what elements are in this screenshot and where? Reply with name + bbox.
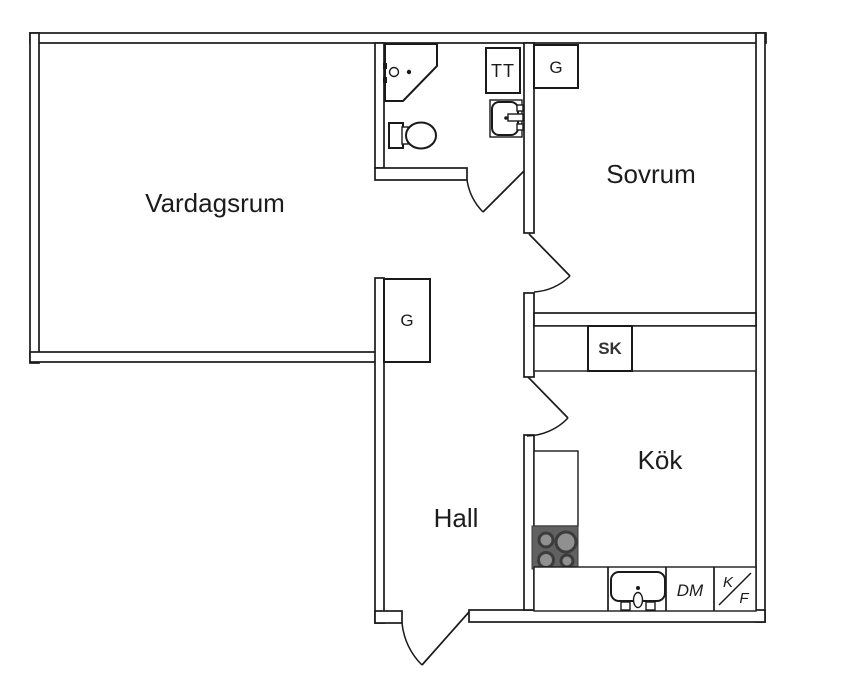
wall-bathroom-left (375, 43, 384, 168)
dishwasher-label: DM (677, 581, 704, 600)
toilet-icon (406, 123, 436, 149)
shower-faucet-icon (390, 68, 399, 77)
kitchen-sink-dot (636, 586, 640, 590)
kitchen-sink-knob-left (621, 602, 630, 610)
fridge-label: K (723, 574, 734, 591)
shower-drain-dot (407, 70, 411, 74)
burner-top-left (539, 533, 553, 547)
washbasin-faucet (508, 114, 523, 121)
kitchen-label: Kök (638, 445, 684, 475)
kitchen-door-swing-icon (527, 418, 568, 436)
wall-divider-middle (524, 293, 534, 377)
burner-bottom-right (561, 555, 573, 567)
bedroom-door (529, 234, 570, 292)
bedroom-label: Sovrum (606, 159, 696, 189)
kitchen-sink-faucet (634, 593, 643, 608)
entry-door (402, 612, 469, 665)
toilet-tank (389, 123, 403, 148)
wall-hall-left (375, 278, 384, 623)
bathroom-door-swing-icon (467, 180, 483, 212)
living-room-label: Vardagsrum (145, 188, 285, 218)
burner-top-right (556, 532, 576, 552)
washbasin-knob-bottom (517, 124, 523, 130)
burner-bottom-left (539, 553, 554, 568)
entry-door-leaf (422, 612, 469, 665)
shower-valve-top (383, 63, 387, 69)
bathroom-door-leaf (483, 171, 524, 212)
washbasin-knob-top (517, 105, 523, 111)
bedroom-wardrobe-label: G (549, 58, 562, 77)
cleaning-cabinet-label: SK (598, 339, 622, 358)
bedroom-door-swing-icon (534, 276, 570, 292)
hall-label: Hall (434, 503, 479, 533)
kitchen-left-counter (534, 451, 578, 526)
wall-entry-stub (375, 611, 402, 623)
floor-plan-svg: TT G G SK DM (0, 0, 858, 678)
floor-plan-canvas: TT G G SK DM (0, 0, 858, 678)
kitchen-upper-counter (534, 326, 756, 371)
bedroom-door-leaf (529, 234, 570, 276)
shower-valve-bottom (383, 77, 387, 83)
kitchen-sink-knob-right (646, 602, 655, 610)
kitchen-door-leaf (528, 377, 568, 418)
washbasin-dot (504, 116, 508, 120)
hall-wardrobe-label: G (400, 311, 413, 330)
bathroom-fixtures: TT (383, 44, 523, 149)
wall-living-bottom (30, 352, 385, 362)
wall-divider-upper (524, 43, 534, 233)
wall-divider-lower (524, 435, 534, 610)
wall-top (30, 33, 766, 43)
freezer-label: F (739, 590, 749, 607)
wall-right (756, 33, 765, 622)
wall-left (30, 33, 39, 363)
bathroom-door (467, 171, 524, 212)
kitchen-door (527, 377, 568, 436)
wall-bottom (469, 610, 765, 622)
entry-door-swing-icon (402, 623, 422, 665)
wall-bathroom-bottom (375, 168, 467, 180)
wall-bedroom-kitchen (534, 313, 756, 326)
washer-label: TT (491, 61, 515, 81)
